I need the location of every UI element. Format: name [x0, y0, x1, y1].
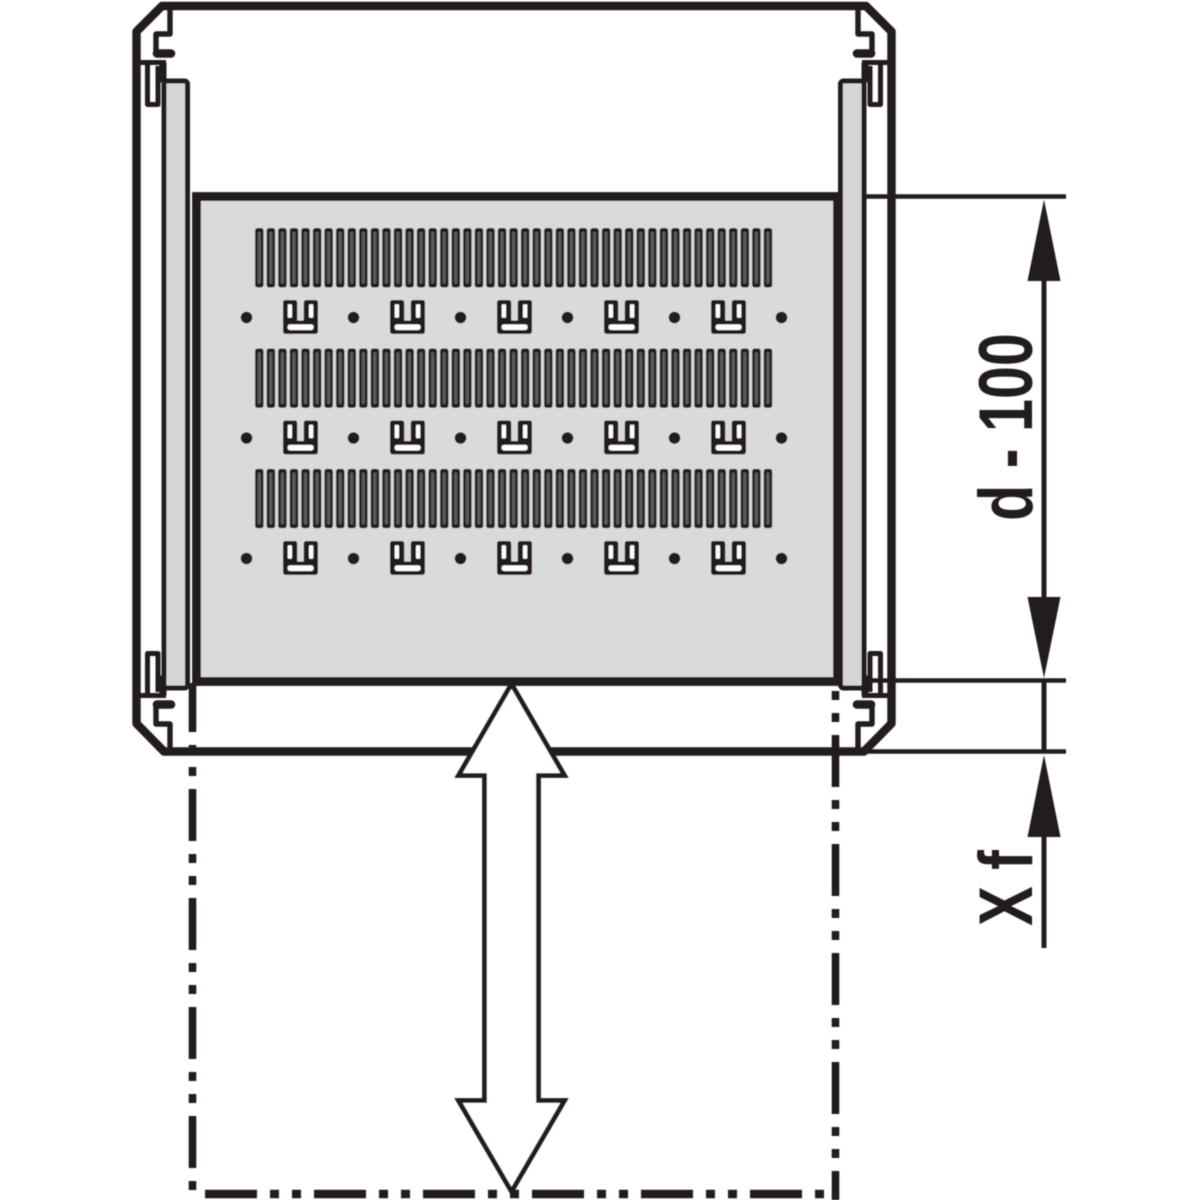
svg-text:X f: X f [964, 850, 1049, 926]
svg-text:d - 100: d - 100 [964, 333, 1049, 521]
